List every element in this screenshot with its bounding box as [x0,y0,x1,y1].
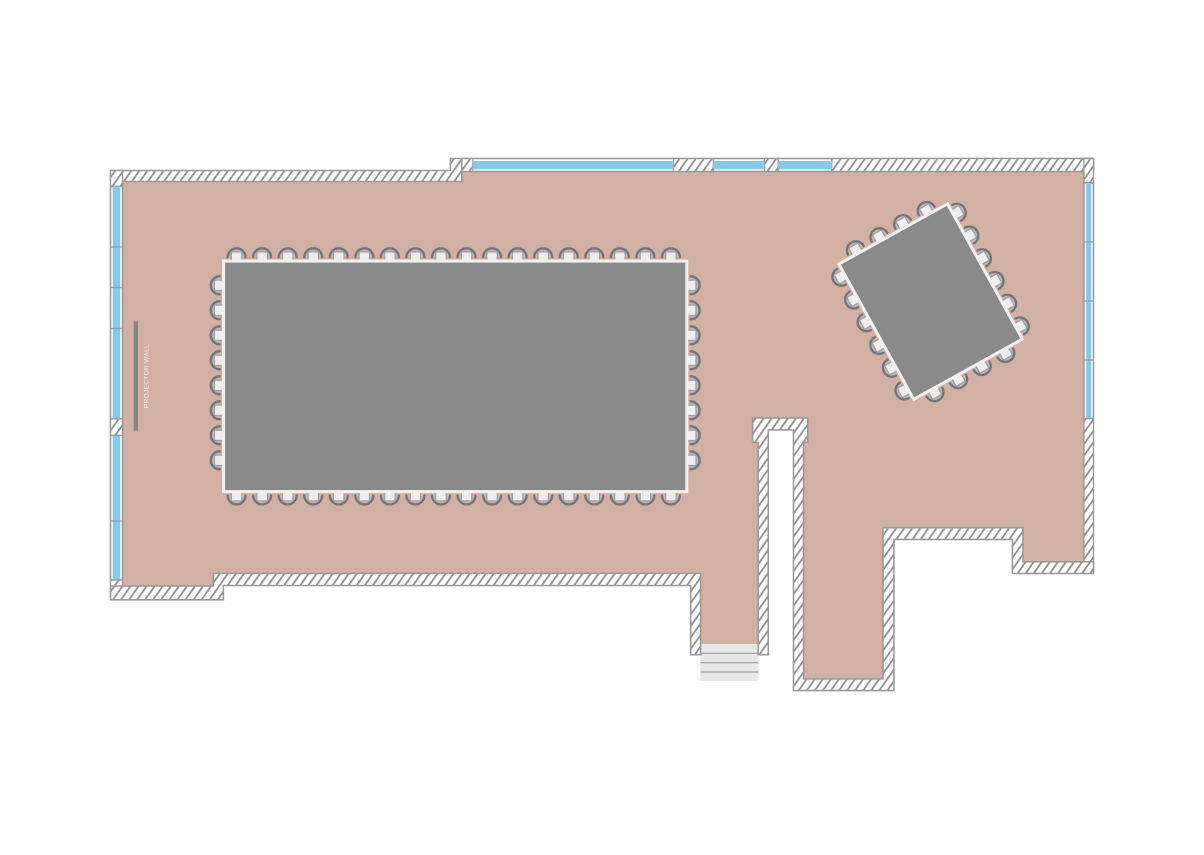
svg-text:PROJECTOR WALL: PROJECTOR WALL [144,344,151,408]
